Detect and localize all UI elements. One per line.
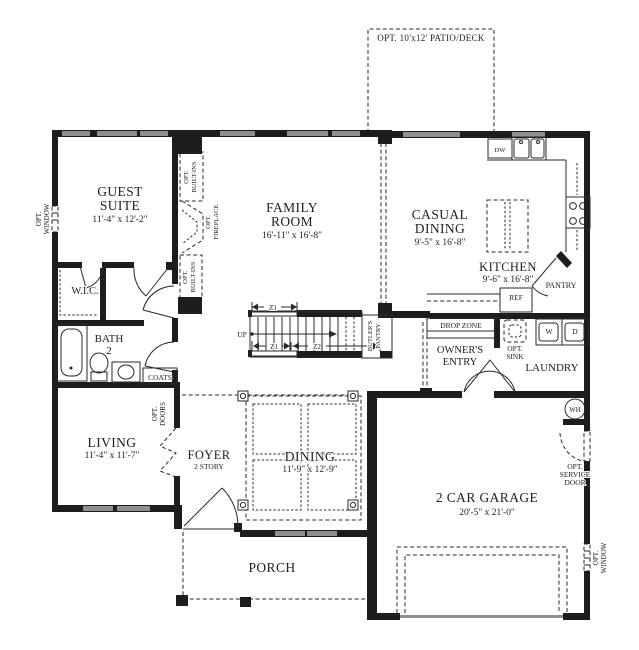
garage-door-opening	[400, 615, 563, 618]
opt-window-left-label2: WINDOW	[43, 203, 51, 234]
pedestal-sink	[90, 353, 108, 381]
dining-dims: 11'-9" x 12'-9"	[282, 465, 337, 475]
patio-label: OPT. 10'x12' PATIO/DECK	[377, 33, 485, 43]
porch-post	[176, 595, 188, 606]
ref-label: REF	[509, 293, 523, 302]
bath-label2: 2	[106, 345, 112, 357]
family-room-label2: ROOM	[271, 214, 313, 229]
dining-label: DINING	[285, 449, 335, 464]
guest-suite-label2: SUITE	[100, 198, 140, 213]
patio-door	[403, 132, 460, 137]
garage-door-track-outer	[397, 547, 567, 613]
guest-suite-dims: 11'-4" x 12'-2"	[92, 215, 147, 225]
porch-label: PORCH	[248, 560, 295, 575]
family-room-label: FAMILY	[266, 200, 318, 215]
opt-window-left-label: OPT.	[35, 212, 43, 227]
service-door-label3: DOOR	[564, 478, 585, 487]
coats-label: COATS	[148, 373, 172, 382]
family-room-dims: 16'-11" x 16'-8"	[262, 231, 322, 241]
pantry-label: PANTRY	[546, 281, 577, 290]
wic-door	[80, 266, 103, 288]
kitchen-label: KITCHEN	[479, 260, 537, 274]
foyer-sub: 2 STORY	[194, 462, 224, 471]
guest-suite-label: GUEST	[97, 184, 143, 199]
garage-door-track-inner	[405, 555, 559, 613]
kitchen-sink	[512, 137, 546, 160]
opt-builtins-top-label2: BUILT-INS	[191, 161, 198, 192]
opt-doors-label: OPT.	[151, 407, 159, 422]
casual-dining-label2: DINING	[415, 221, 465, 236]
owners-entry-label2: ENTRY	[443, 357, 478, 368]
chimney-block-top	[178, 137, 202, 154]
opt-fireplace-label: OPT.	[205, 215, 212, 229]
living-dims: 11'-4" x 11'-7"	[85, 451, 140, 461]
cased-opening-family-casual	[381, 143, 386, 303]
garage-label: 2 CAR GARAGE	[436, 490, 538, 505]
opt-service-door-opening	[584, 431, 590, 461]
washer-dryer	[536, 319, 589, 345]
up-label: UP	[237, 330, 247, 339]
wic-label: W.I.C.	[71, 286, 98, 297]
floor-plan: OPT. 10'x12' PATIO/DECK GUEST SUITE 11'-…	[0, 0, 639, 650]
drop-zone-label: DROP ZONE	[440, 321, 482, 330]
water-heater-label: WH	[569, 406, 581, 414]
opt-sink-label2: SINK	[506, 352, 524, 361]
foyer-label: FOYER	[188, 448, 231, 462]
dryer-label: D	[572, 327, 578, 336]
pantry-angled-wall	[556, 251, 572, 268]
owners-entry-label: OWNER'S	[437, 345, 483, 356]
doors	[80, 258, 556, 526]
labels: OPT. 10'x12' PATIO/DECK GUEST SUITE 11'-…	[35, 33, 608, 575]
opt-doors-label2: DOORS	[159, 402, 167, 426]
garage-dims: 20'-5" x 21'-0"	[459, 508, 515, 518]
living-label: LIVING	[88, 435, 137, 450]
porch-post	[240, 597, 251, 607]
toilet	[112, 362, 140, 382]
opt-builtins-top-label: OPT.	[183, 170, 190, 184]
opt-doors-zigzag	[160, 428, 176, 477]
z1-bottom-label: Z1	[270, 343, 278, 351]
z1-top-label: Z1	[269, 304, 277, 312]
opt-window-right-label: OPT.	[592, 551, 600, 566]
butlers-pantry-label: BUTLER'S	[367, 320, 374, 351]
bathtub	[56, 324, 87, 381]
opt-fireplace-label2: FIREPLACE	[213, 204, 220, 239]
patio-outline	[368, 29, 494, 133]
opt-service-door-swing	[560, 433, 590, 462]
z2-label: Z2	[313, 343, 321, 351]
kitchen-dims: 9'-6" x 16'-8"	[483, 275, 534, 285]
opt-fireplace-box	[182, 201, 203, 253]
cased-opening-hall-owners	[423, 322, 427, 388]
chimney-block-bottom	[178, 297, 202, 314]
bath-door	[143, 286, 174, 318]
casual-dining-dims: 9'-5" x 16'-8"	[415, 238, 466, 248]
butlers-pantry-label2: PANTRY	[375, 323, 382, 349]
opt-builtins-bottom-label: OPT.	[182, 270, 189, 284]
dw-label: DW	[495, 147, 507, 154]
casual-dining-label: CASUAL	[412, 207, 468, 222]
washer-label: W	[545, 327, 553, 336]
laundry-label: LAUNDRY	[525, 362, 578, 374]
front-door	[184, 488, 238, 526]
opt-sink-fixture	[504, 320, 526, 342]
opt-window-right-label2: WINDOW	[600, 542, 608, 573]
opt-builtins-bottom-label2: BUILT-INS	[190, 261, 197, 292]
opt-window-left-opening	[52, 206, 58, 232]
guest-suite-door	[134, 268, 168, 296]
bath-label: BATH	[95, 333, 124, 345]
kitchen-island	[487, 200, 528, 252]
